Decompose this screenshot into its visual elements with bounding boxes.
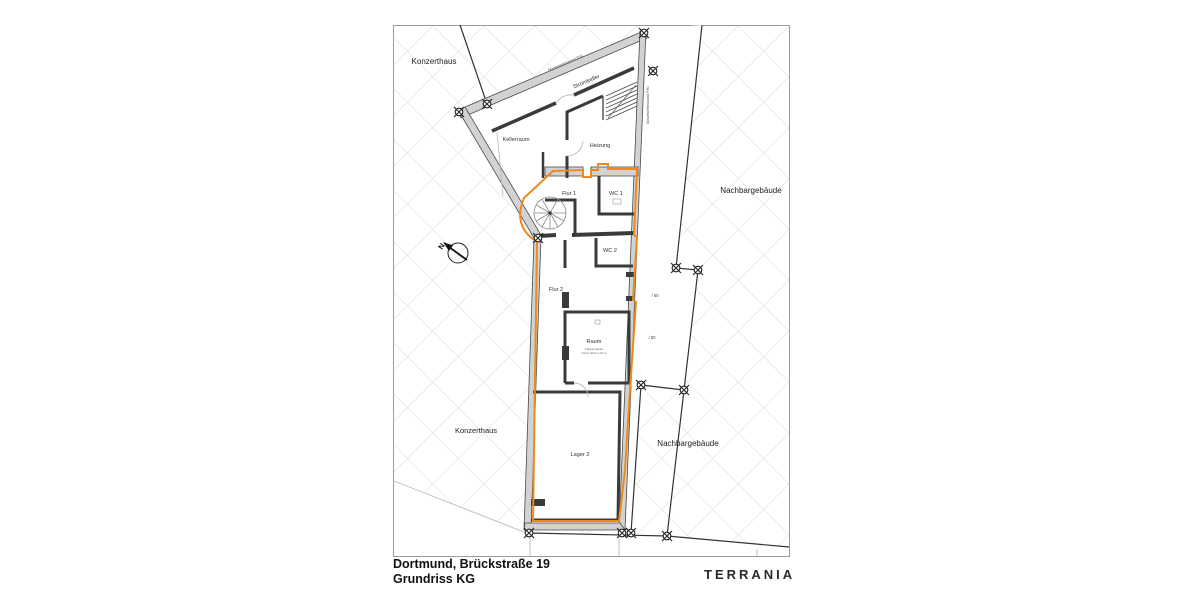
site-label-konzerthaus-top: Konzerthaus — [412, 57, 457, 66]
wall-bottom — [524, 523, 625, 530]
drawing-title: Grundriss KG — [393, 572, 550, 587]
room-label-wc1: WC 1 — [609, 191, 623, 197]
dim-lower: / 50 — [649, 335, 657, 340]
survey-point — [679, 385, 689, 395]
raum-caption-2: lichte Höhe 2,31 m — [581, 351, 607, 355]
survey-point — [693, 265, 703, 275]
survey-point — [617, 528, 627, 538]
room-label-wc2: WC 2 — [603, 248, 617, 254]
room-label-raum: Raum — [587, 339, 602, 345]
room-label-flur2: Flur 2 — [549, 287, 563, 293]
survey-point — [626, 528, 636, 538]
room-label-lager2: Lager 2 — [571, 452, 590, 458]
site-label-nachbargebaeude-bottom: Nachbargebäude — [657, 439, 719, 448]
site-label-konzerthaus-bottom: Konzerthaus — [455, 426, 497, 435]
pier — [626, 272, 634, 277]
dim-upper: / 60 — [652, 293, 660, 298]
pier — [562, 346, 569, 360]
title-block: Dortmund, Brückstraße 19 Grundriss KG — [393, 557, 550, 587]
wall-label-right: Mauerwerkswand F90 — [646, 86, 650, 123]
survey-point — [636, 380, 646, 390]
survey-point — [524, 528, 534, 538]
room-label-kellerraum: Kellerraum — [502, 137, 529, 143]
site-plan-svg: N Kellerraum Stromkeller Heizung Flur 1 … — [0, 0, 1200, 600]
brand-logo: TERRANIA — [704, 567, 795, 582]
project-address: Dortmund, Brückstraße 19 — [393, 557, 550, 572]
survey-point — [639, 28, 649, 38]
survey-point — [671, 263, 681, 273]
pier — [562, 292, 569, 308]
survey-point — [482, 99, 492, 109]
survey-point — [648, 66, 658, 76]
survey-point — [662, 531, 672, 541]
floor-plan-page: N Kellerraum Stromkeller Heizung Flur 1 … — [0, 0, 1200, 600]
survey-point — [533, 233, 543, 243]
room-label-heizung: Heizung — [590, 143, 611, 149]
site-label-nachbargebaeude-top: Nachbargebäude — [720, 186, 782, 195]
room-label-flur1: Flur 1 — [562, 191, 576, 197]
survey-point — [454, 107, 464, 117]
